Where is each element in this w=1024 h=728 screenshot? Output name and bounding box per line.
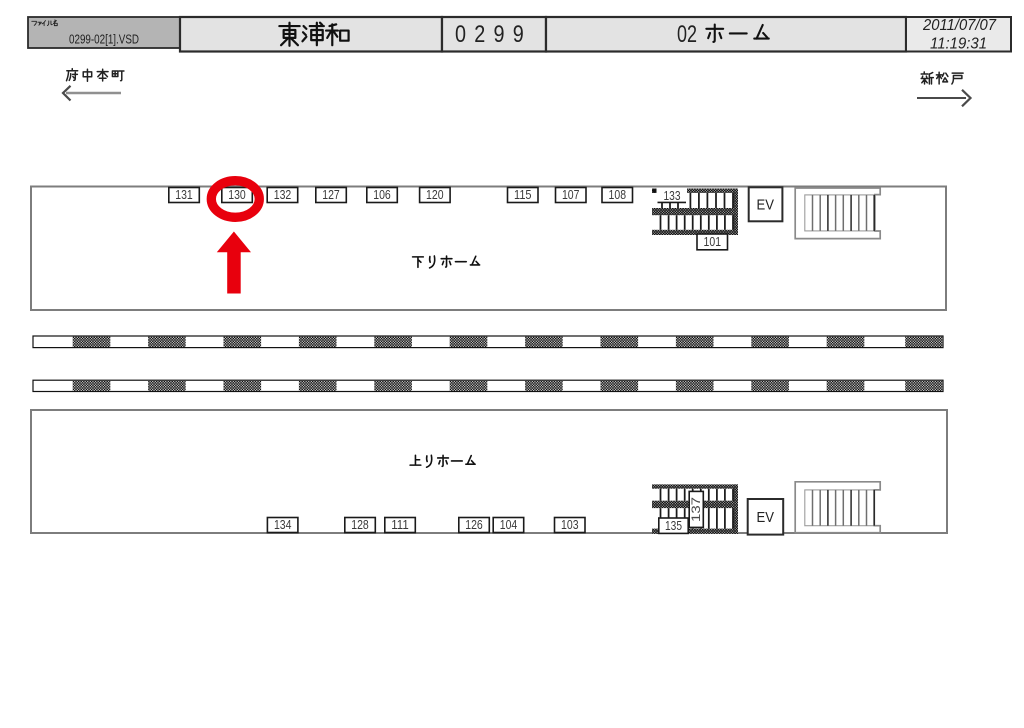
svg-text:EV: EV: [757, 510, 775, 526]
svg-text:126: 126: [465, 518, 483, 532]
svg-text:115: 115: [514, 188, 532, 202]
svg-text:2011/07/07: 2011/07/07: [922, 17, 997, 34]
svg-text:EV: EV: [757, 197, 775, 213]
svg-text:134: 134: [274, 518, 292, 532]
svg-text:0299: 0299: [455, 21, 532, 48]
svg-text:133: 133: [664, 189, 681, 203]
svg-text:101: 101: [704, 235, 722, 249]
svg-text:135: 135: [665, 519, 682, 533]
svg-text:120: 120: [426, 188, 444, 202]
svg-text:132: 132: [274, 188, 292, 202]
svg-text:104: 104: [500, 518, 518, 532]
svg-text:111: 111: [391, 518, 409, 532]
svg-text:108: 108: [609, 188, 627, 202]
svg-text:107: 107: [562, 188, 580, 202]
svg-text:11:19:31: 11:19:31: [930, 36, 987, 53]
svg-text:128: 128: [351, 518, 369, 532]
svg-text:106: 106: [373, 188, 391, 202]
svg-text:131: 131: [175, 188, 193, 202]
svg-text:137: 137: [689, 497, 703, 522]
svg-text:02: 02: [677, 21, 697, 48]
svg-text:127: 127: [322, 188, 340, 202]
svg-text:130: 130: [228, 188, 246, 202]
svg-text:0299-02[1].VSD: 0299-02[1].VSD: [69, 33, 139, 47]
svg-text:103: 103: [561, 518, 579, 532]
